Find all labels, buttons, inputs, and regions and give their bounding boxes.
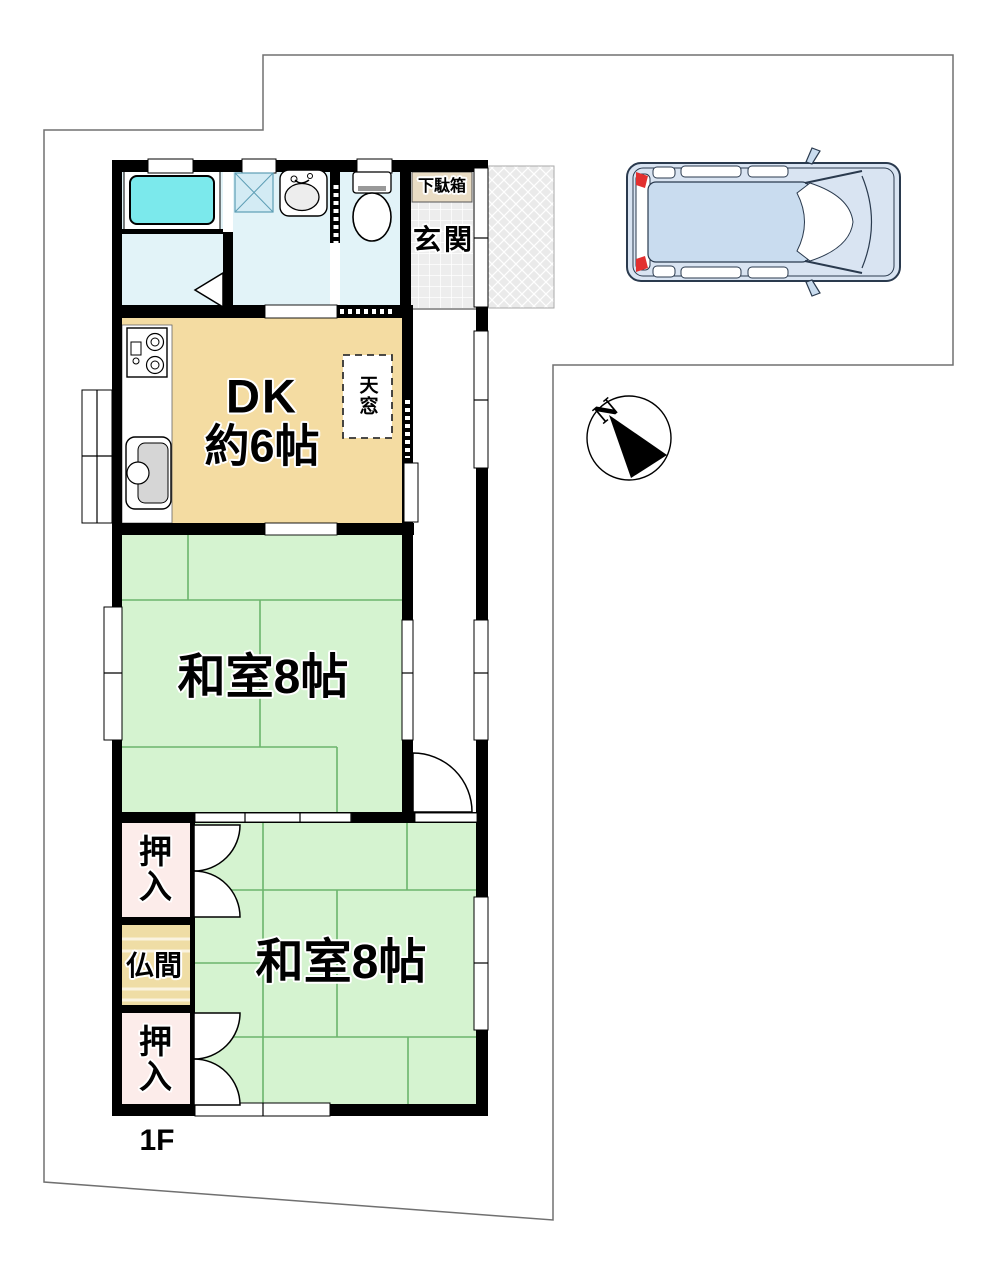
corridor-east-window-lower (474, 620, 488, 740)
kitchen-bay-window (82, 390, 112, 523)
corridor-east-window-upper (474, 331, 488, 468)
car (627, 148, 900, 296)
washing-machine-pan (235, 173, 273, 212)
car-mirror-top (806, 148, 820, 164)
washitsu-upper-west-window (104, 607, 122, 740)
bathroom-window (148, 159, 193, 173)
car-mirror-bottom (806, 280, 820, 296)
dk-washitsu-doorway (265, 523, 337, 535)
butsuma-label: 仏間 (126, 952, 182, 980)
washroom-sink (280, 170, 327, 216)
stove (127, 328, 167, 377)
washitsu-sliding-doors (195, 813, 352, 822)
car-roof (648, 182, 810, 262)
corridor-washitsu-doorway (415, 813, 477, 822)
toilet-window (357, 159, 392, 173)
washitsu-lower-label: 和室8帖 (256, 939, 427, 987)
washroom-dk-doorway (265, 305, 337, 318)
dk-size-label: 約6帖 (204, 424, 319, 469)
toilet (353, 172, 391, 241)
oshiire-upper-label: 押入 (137, 834, 170, 904)
washitsu-upper-label: 和室8帖 (178, 654, 349, 702)
washitsu-lower-east-window (474, 897, 488, 1030)
washitsu-upper-corridor-window (402, 620, 413, 740)
washroom-window (242, 159, 276, 173)
dk-corridor-window (404, 463, 418, 522)
genkan-floor (411, 202, 477, 309)
dk-label: DK (226, 373, 298, 420)
getabako-label: 下駄箱 (418, 179, 466, 195)
kitchen-sink (126, 437, 171, 509)
corridor-door-swing (413, 753, 472, 812)
bathtub (130, 176, 214, 224)
genkan-label: 玄関 (413, 226, 475, 254)
floor-plan-page: DK 約6帖 和室8帖 和室8帖 玄関 下駄箱 天窓 押入 仏間 押入 1F N (0, 0, 1000, 1279)
entrance-porch (488, 166, 554, 308)
floor-label: 1F (139, 1126, 174, 1156)
skylight-label: 天窓 (358, 375, 377, 417)
oshiire-lower-label: 押入 (137, 1024, 170, 1094)
entrance-door (474, 168, 488, 307)
